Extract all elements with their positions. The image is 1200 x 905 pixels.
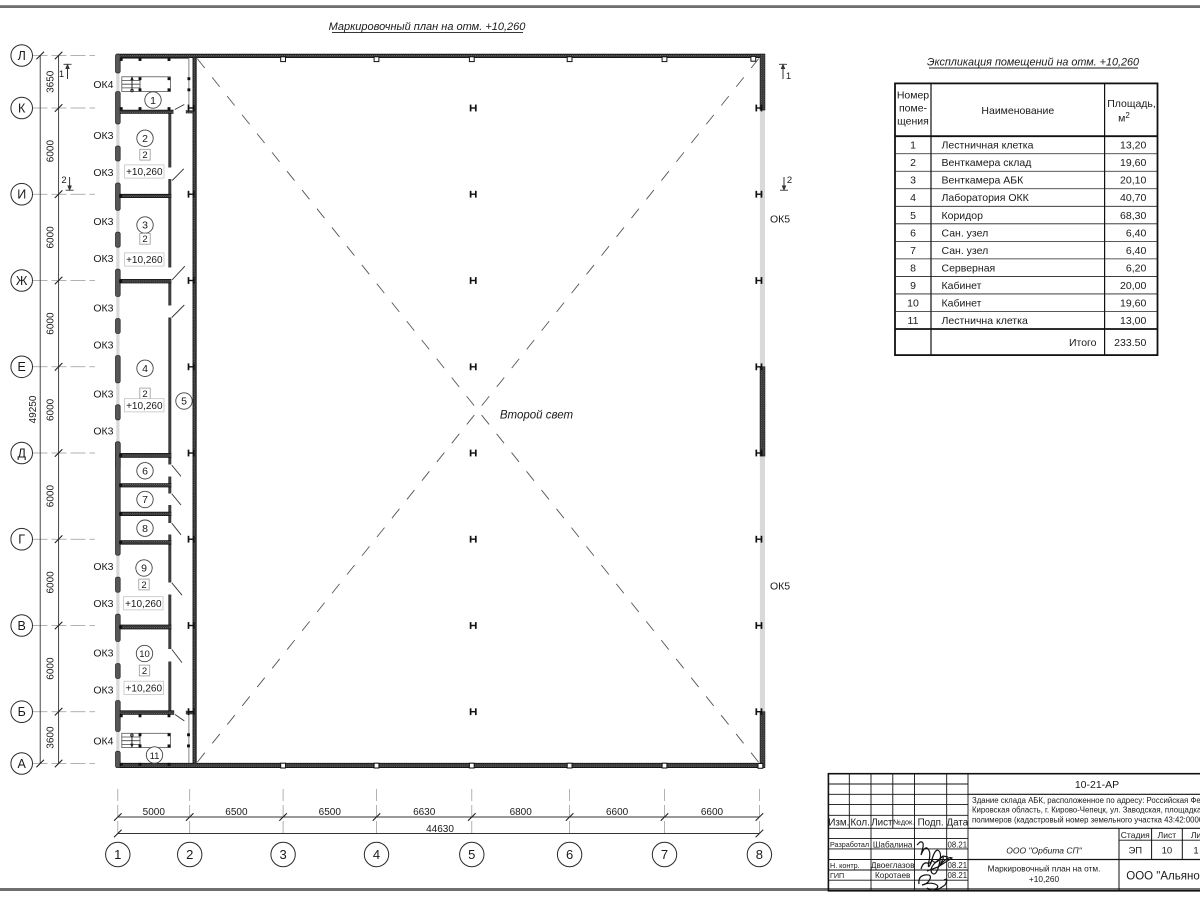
svg-text:Экспликация помещений на отм.: Экспликация помещений на отм. +10,260	[927, 57, 1139, 69]
svg-text:ОК5: ОК5	[770, 214, 790, 226]
svg-text:7: 7	[661, 847, 668, 862]
svg-text:2: 2	[61, 175, 66, 186]
svg-text:5: 5	[468, 847, 475, 862]
svg-text:ОК3: ОК3	[93, 684, 113, 696]
svg-text:11: 11	[908, 315, 919, 327]
svg-text:Разработал: Разработал	[830, 840, 869, 849]
svg-text:Кабинет: Кабинет	[942, 280, 982, 292]
svg-text:Лестнична клетка: Лестнична клетка	[942, 315, 1028, 327]
svg-text:Н. контр.: Н. контр.	[830, 861, 860, 870]
svg-text:Ж: Ж	[16, 274, 28, 288]
svg-text:2: 2	[142, 133, 148, 145]
svg-text:2: 2	[142, 389, 147, 400]
svg-text:А: А	[18, 757, 27, 771]
svg-text:Лаборатория ОКК: Лаборатория ОКК	[942, 192, 1030, 204]
svg-text:10: 10	[139, 649, 150, 660]
svg-text:Изм.: Изм.	[828, 818, 849, 829]
svg-text:+10,260: +10,260	[126, 167, 163, 178]
svg-text:2: 2	[787, 175, 792, 186]
svg-text:Площадь,: Площадь,	[1107, 98, 1156, 110]
svg-text:3: 3	[279, 847, 286, 862]
svg-text:6000: 6000	[46, 312, 57, 335]
svg-text:6800: 6800	[510, 807, 533, 818]
svg-text:3: 3	[142, 220, 148, 232]
svg-text:6: 6	[142, 465, 148, 477]
svg-text:ОК3: ОК3	[93, 216, 113, 228]
svg-text:1: 1	[786, 71, 791, 82]
svg-text:№док.: №док.	[893, 818, 914, 827]
svg-text:Кабинет: Кабинет	[942, 297, 982, 309]
svg-text:2: 2	[186, 847, 193, 862]
svg-text:3600: 3600	[46, 726, 57, 749]
svg-text:Лист: Лист	[1158, 830, 1177, 840]
svg-text:1: 1	[1193, 846, 1198, 857]
svg-text:Ли: Ли	[1191, 830, 1200, 840]
svg-text:Венткамера склад: Венткамера склад	[942, 157, 1032, 169]
svg-text:08.21: 08.21	[948, 871, 968, 880]
svg-text:1: 1	[59, 69, 64, 80]
svg-text:ОК3: ОК3	[93, 426, 113, 438]
svg-text:И: И	[17, 188, 26, 202]
svg-text:поме-: поме-	[899, 103, 928, 115]
svg-text:ЭП: ЭП	[1128, 846, 1142, 857]
svg-text:Двоеглазов: Двоеглазов	[871, 861, 915, 870]
svg-text:40,70: 40,70	[1120, 192, 1146, 204]
svg-text:6000: 6000	[46, 657, 57, 680]
svg-text:13,00: 13,00	[1120, 315, 1146, 327]
svg-text:ОК3: ОК3	[93, 130, 113, 142]
svg-text:6: 6	[910, 227, 916, 239]
svg-text:6600: 6600	[701, 807, 724, 818]
svg-text:6: 6	[566, 847, 573, 862]
svg-text:ОК3: ОК3	[93, 339, 113, 351]
svg-text:13,20: 13,20	[1120, 140, 1146, 152]
svg-text:Л: Л	[18, 49, 26, 63]
svg-text:2: 2	[141, 580, 146, 591]
svg-text:10-21-АР: 10-21-АР	[1075, 779, 1119, 791]
svg-text:08.21: 08.21	[948, 840, 968, 849]
svg-text:3650: 3650	[46, 70, 57, 93]
svg-text:6,40: 6,40	[1126, 227, 1147, 239]
svg-text:1: 1	[150, 95, 156, 107]
svg-text:Лестничная клетка: Лестничная клетка	[942, 140, 1034, 152]
svg-text:Серверная: Серверная	[942, 262, 996, 274]
svg-text:7: 7	[910, 245, 916, 257]
svg-text:полимеров (кадастровый номер з: полимеров (кадастровый номер земельного …	[972, 815, 1200, 824]
svg-text:20,10: 20,10	[1120, 175, 1146, 187]
svg-text:Венткамера АБК: Венткамера АБК	[942, 175, 1025, 187]
svg-text:6500: 6500	[225, 807, 248, 818]
svg-text:49250: 49250	[28, 395, 39, 423]
svg-text:Стадия: Стадия	[1121, 830, 1150, 840]
svg-text:Сан. узел: Сан. узел	[942, 245, 989, 257]
svg-text:ОК3: ОК3	[93, 253, 113, 265]
svg-text:ГИП: ГИП	[830, 871, 844, 880]
svg-text:1: 1	[114, 847, 121, 862]
svg-text:11: 11	[150, 751, 160, 762]
svg-text:9: 9	[141, 563, 147, 575]
svg-text:6000: 6000	[46, 485, 57, 508]
svg-text:9: 9	[910, 280, 916, 292]
svg-text:233.50: 233.50	[1114, 337, 1146, 349]
svg-text:Маркировочный план на отм.: Маркировочный план на отм.	[988, 864, 1101, 874]
svg-text:5000: 5000	[143, 807, 166, 818]
svg-text:ОК4: ОК4	[93, 79, 113, 91]
svg-text:6500: 6500	[319, 807, 342, 818]
svg-text:Коридор: Коридор	[942, 210, 984, 222]
svg-text:8: 8	[756, 847, 763, 862]
svg-text:1: 1	[910, 140, 916, 152]
svg-text:Кировская область, г. Кирово-Ч: Кировская область, г. Кирово-Чепецк, ул.…	[972, 806, 1200, 815]
svg-text:ОК3: ОК3	[93, 389, 113, 401]
svg-text:7: 7	[142, 494, 148, 506]
svg-text:6000: 6000	[46, 140, 57, 163]
svg-text:Г: Г	[18, 533, 25, 547]
svg-text:2: 2	[142, 150, 147, 161]
svg-text:Номер: Номер	[897, 90, 929, 102]
svg-text:3: 3	[910, 175, 916, 187]
svg-text:4: 4	[373, 847, 380, 862]
svg-text:10: 10	[907, 297, 919, 309]
svg-text:ООО "Орбита СП": ООО "Орбита СП"	[1006, 846, 1082, 856]
svg-text:8: 8	[142, 523, 148, 535]
svg-text:ОК3: ОК3	[93, 167, 113, 179]
svg-text:+10,260: +10,260	[126, 255, 163, 266]
svg-text:6630: 6630	[413, 807, 436, 818]
svg-text:Е: Е	[18, 360, 26, 374]
svg-text:19,60: 19,60	[1120, 157, 1146, 169]
svg-text:68,30: 68,30	[1120, 210, 1146, 222]
svg-text:Б: Б	[18, 705, 26, 719]
svg-text:Итого: Итого	[1069, 337, 1097, 349]
svg-text:Здание склада АБК, расположенн: Здание склада АБК, расположенное по адре…	[972, 796, 1200, 805]
svg-text:ОК5: ОК5	[770, 581, 790, 593]
svg-text:+10,260: +10,260	[1029, 874, 1060, 884]
svg-text:ОК3: ОК3	[93, 647, 113, 659]
svg-text:+10,260: +10,260	[126, 401, 163, 412]
svg-text:Лист: Лист	[871, 818, 893, 829]
svg-text:6000: 6000	[46, 571, 57, 594]
svg-text:2: 2	[142, 234, 147, 245]
svg-text:20,00: 20,00	[1120, 280, 1146, 292]
svg-text:В: В	[18, 619, 26, 633]
svg-text:+10,260: +10,260	[126, 683, 163, 694]
svg-text:Наименование: Наименование	[981, 105, 1054, 117]
svg-text:ОК4: ОК4	[93, 735, 113, 747]
svg-text:Второй свет: Второй свет	[500, 410, 574, 422]
svg-text:Подп.: Подп.	[918, 818, 944, 829]
svg-text:10: 10	[1162, 846, 1173, 857]
svg-text:ОК3: ОК3	[93, 561, 113, 573]
svg-text:5: 5	[910, 210, 916, 222]
svg-text:Шабалина: Шабалина	[873, 840, 913, 849]
svg-text:5: 5	[181, 396, 187, 408]
svg-text:6,20: 6,20	[1126, 262, 1147, 274]
svg-text:Кол.: Кол.	[850, 818, 869, 829]
svg-text:2: 2	[142, 666, 147, 677]
svg-text:2: 2	[910, 157, 916, 169]
svg-text:Дата: Дата	[946, 818, 968, 829]
svg-text:08.21: 08.21	[948, 861, 968, 870]
svg-text:+10,260: +10,260	[125, 599, 162, 610]
svg-text:щения: щения	[897, 116, 929, 128]
svg-text:6000: 6000	[46, 226, 57, 249]
svg-text:Коротаев: Коротаев	[875, 871, 910, 880]
svg-text:ООО "Альяно: ООО "Альяно	[1126, 871, 1199, 883]
svg-text:6,40: 6,40	[1126, 245, 1147, 257]
svg-text:Д: Д	[17, 446, 26, 460]
svg-text:К: К	[18, 101, 26, 115]
svg-text:44630: 44630	[426, 824, 454, 835]
svg-text:19,60: 19,60	[1120, 297, 1146, 309]
svg-text:Маркировочный план на отм. +10: Маркировочный план на отм. +10,260	[329, 21, 527, 33]
svg-text:4: 4	[142, 363, 148, 375]
svg-text:6000: 6000	[46, 398, 57, 421]
svg-text:8: 8	[910, 262, 916, 274]
svg-text:4: 4	[910, 192, 916, 204]
svg-text:ОК3: ОК3	[93, 598, 113, 610]
svg-text:Сан. узел: Сан. узел	[942, 227, 989, 239]
svg-text:ОК3: ОК3	[93, 302, 113, 314]
svg-text:6600: 6600	[606, 807, 629, 818]
